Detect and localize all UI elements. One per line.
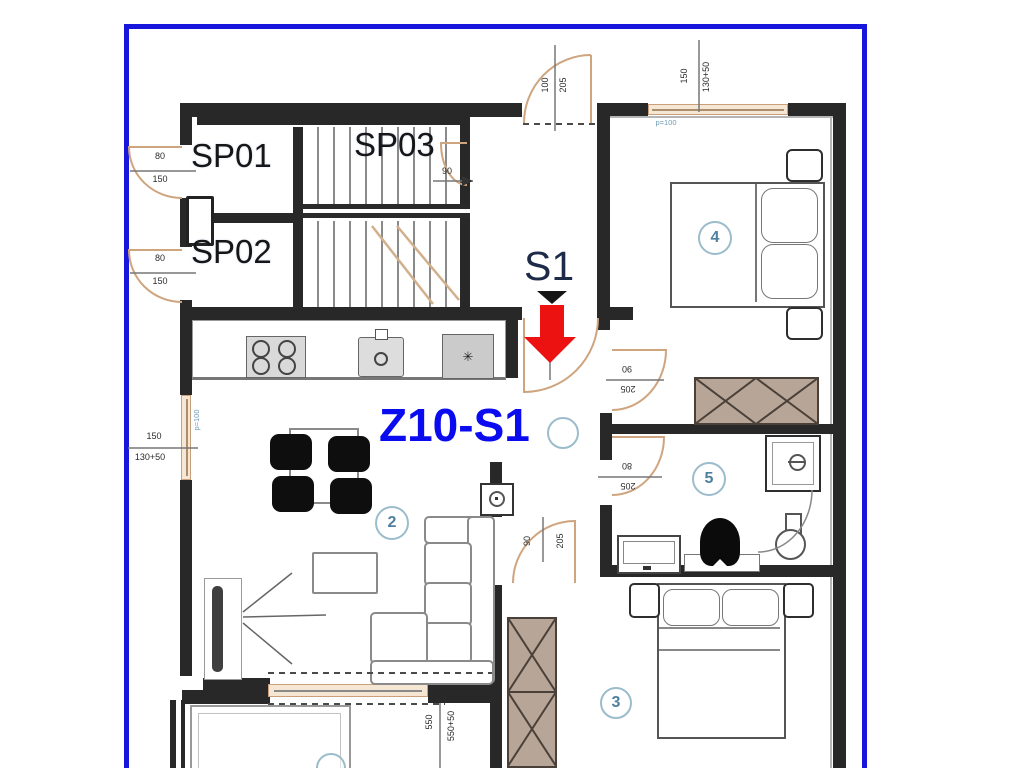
stove (246, 336, 306, 378)
dim-sp02-h: 150 (142, 277, 178, 286)
dim-sp01-h: 150 (142, 175, 178, 184)
dining-chair (272, 476, 314, 512)
parapet-note-left: p=100 (192, 405, 202, 435)
dim-room5-door-w: 80 (613, 461, 641, 470)
label-sp01: SP01 (191, 139, 272, 172)
dim-terrace-h: 550+50 (445, 700, 457, 752)
dim-left-window-w: 150 (136, 432, 172, 441)
fridge: ✳ (442, 334, 494, 379)
window-left (181, 395, 191, 480)
room-number-4: 4 (698, 221, 732, 255)
tv-unit (204, 578, 242, 680)
bed-room4-headline (755, 184, 757, 302)
stairs-landing-wall (303, 204, 470, 218)
dim-top-window-h: 130+50 (700, 51, 712, 103)
room-number-3-label: 3 (612, 694, 621, 712)
sink-faucet (375, 329, 388, 340)
pillow (663, 589, 720, 626)
entrance-arrow-head (524, 337, 576, 363)
dim-hall-door-h: 205 (611, 384, 645, 393)
terrace-slider-door (268, 684, 428, 697)
wall-room4-left (597, 103, 610, 330)
stove-burner (252, 357, 270, 375)
dining-chair (328, 436, 370, 472)
shower (765, 435, 821, 492)
nightstand (786, 149, 823, 182)
wall-room5-left-a (600, 413, 612, 460)
wall-right-inner-line (830, 116, 832, 768)
dining-chair (330, 478, 372, 514)
dim-left-window-h: 130+50 (124, 453, 176, 462)
entrance-arrow-shaft (540, 305, 564, 338)
label-sp03: SP03 (354, 128, 435, 161)
tv-screen (212, 586, 223, 672)
dim-sp02-w: 80 (146, 254, 174, 263)
dim-room5-door-h: 205 (611, 481, 645, 490)
toilet-bowl (775, 529, 806, 560)
stairs-lower-treads (303, 221, 460, 307)
room-number-hidden (547, 417, 579, 449)
nightstand (629, 583, 660, 618)
room-number-4-label: 4 (711, 229, 720, 247)
bed-room3-line (659, 649, 780, 651)
dim-sp01-w: 80 (146, 152, 174, 161)
dresser (617, 535, 681, 574)
stove-burner (278, 340, 296, 358)
unit-label: Z10-S1 (379, 400, 530, 451)
wardrobe-hall (694, 377, 819, 425)
wall-bottom-left-b (182, 690, 270, 704)
room-number-2-label: 2 (388, 514, 397, 532)
window-top-right (648, 104, 788, 115)
dim-hall-door-w: 90 (613, 364, 641, 373)
wall-left-d (180, 480, 192, 676)
wall-right (833, 103, 846, 768)
boiler (480, 483, 514, 516)
room-number-5: 5 (692, 462, 726, 496)
wall-top-inner (197, 117, 470, 125)
dim-sp03-w: 90 (433, 167, 461, 176)
wall-kitchen-top (180, 307, 522, 320)
label-sp02: SP02 (191, 235, 272, 268)
sofa-cushion (424, 622, 472, 664)
wardrobe-lower (507, 617, 557, 768)
entrance-marker-pointer (537, 291, 567, 304)
dining-chair (270, 434, 312, 470)
coffee-table (312, 552, 378, 594)
entrance-marker-label: S1 (524, 246, 574, 287)
pillow (761, 188, 818, 243)
sink-drain (374, 352, 388, 366)
dim-room3-door-w: 90 (521, 527, 533, 555)
wall-sp-right (293, 127, 303, 315)
wall-top-inner-line (600, 116, 833, 118)
room-number-5-label: 5 (705, 470, 714, 488)
bed-room3-line (659, 627, 780, 629)
dim-entry-w: 100 (539, 69, 551, 101)
dim-entry-h: 205 (557, 69, 569, 101)
room-number-2: 2 (375, 506, 409, 540)
sofa-cushion (424, 542, 472, 586)
sofa-cushion (424, 582, 472, 626)
wall-room5-top (606, 424, 836, 434)
floor-plan: ✳ (0, 0, 1024, 768)
office-chair (700, 518, 740, 566)
pillow (722, 589, 779, 626)
pillow (761, 244, 818, 299)
dim-terrace-w: 550 (423, 704, 435, 740)
dim-room3-door-h: 205 (554, 524, 566, 558)
nightstand (786, 307, 823, 340)
nightstand (783, 583, 814, 618)
wall-balcony-left-a (170, 700, 176, 768)
sofa-chaise (370, 612, 428, 664)
wall-top-left (180, 103, 522, 117)
room-number-3: 3 (600, 687, 632, 719)
parapet-note-top: p=100 (649, 118, 683, 127)
dim-top-window-w: 150 (678, 58, 690, 94)
stove-burner (278, 357, 296, 375)
sofa-armrest (370, 660, 494, 685)
wall-balcony-left-b (181, 700, 185, 768)
stove-burner (252, 340, 270, 358)
